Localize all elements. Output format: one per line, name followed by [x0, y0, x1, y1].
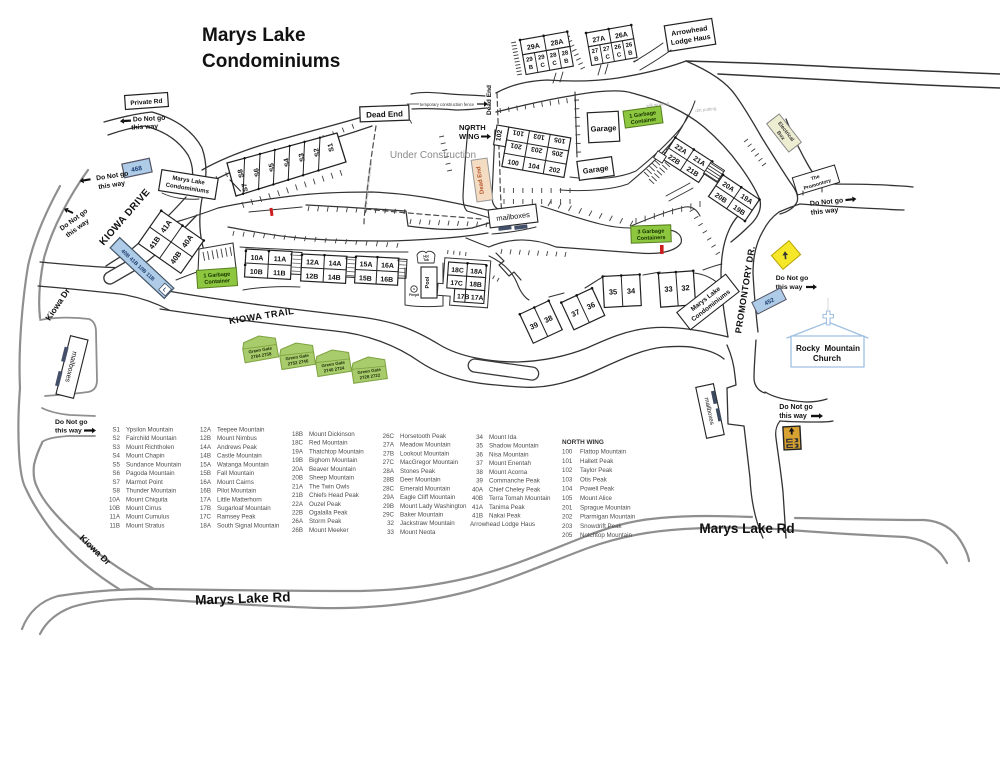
svg-text:201: 201 — [562, 504, 573, 511]
svg-text:temporary construction fence: temporary construction fence — [420, 102, 475, 107]
svg-text:10A: 10A — [250, 255, 263, 263]
svg-text:Commanche Peak: Commanche Peak — [489, 478, 541, 485]
svg-text:Sprague Mountain: Sprague Mountain — [580, 504, 631, 511]
svg-text:34: 34 — [476, 434, 483, 441]
svg-text:Baker Mountain: Baker Mountain — [400, 511, 444, 518]
svg-text:Horsetooth Peak: Horsetooth Peak — [400, 433, 447, 440]
svg-text:29A: 29A — [383, 494, 395, 501]
svg-text:21A: 21A — [292, 483, 304, 490]
svg-text:Teepee Mountain: Teepee Mountain — [217, 427, 265, 434]
svg-text:Castle Mountain: Castle Mountain — [217, 453, 262, 460]
svg-text:14B: 14B — [200, 453, 211, 460]
svg-text:18B: 18B — [292, 431, 303, 438]
svg-text:Sugarloaf Mountain: Sugarloaf Mountain — [217, 505, 271, 512]
svg-text:17C: 17C — [450, 280, 463, 288]
svg-text:11B: 11B — [109, 522, 120, 529]
svg-text:Mount Cumulus: Mount Cumulus — [126, 514, 169, 521]
svg-text:Mount Nimbus: Mount Nimbus — [217, 435, 257, 442]
svg-text:S6: S6 — [112, 470, 120, 477]
svg-text:Powell Peak: Powell Peak — [580, 486, 615, 493]
svg-text:S2: S2 — [112, 435, 120, 442]
svg-text:32: 32 — [681, 283, 690, 293]
svg-text:10A: 10A — [109, 496, 121, 503]
svg-text:Ypsilon Mountain: Ypsilon Mountain — [126, 427, 174, 434]
svg-text:Marys Lake Rd: Marys Lake Rd — [699, 521, 794, 536]
svg-text:11A: 11A — [109, 514, 120, 521]
svg-text:Eagle Cliff Mountain: Eagle Cliff Mountain — [400, 494, 456, 501]
svg-text:36: 36 — [476, 451, 483, 458]
svg-text:10B: 10B — [109, 505, 120, 512]
svg-text:Chiefs Head Peak: Chiefs Head Peak — [309, 492, 360, 499]
svg-text:26B: 26B — [292, 527, 303, 534]
svg-text:35: 35 — [476, 443, 483, 450]
svg-text:16B: 16B — [380, 276, 393, 284]
svg-text:Storm Peak: Storm Peak — [309, 518, 342, 525]
svg-text:15A: 15A — [200, 461, 212, 468]
svg-text:Watanga Mountain: Watanga Mountain — [217, 461, 269, 468]
svg-text:Containers: Containers — [637, 235, 666, 242]
svg-text:Mount Dickinson: Mount Dickinson — [309, 431, 355, 438]
svg-text:18B: 18B — [469, 281, 482, 289]
svg-text:27C: 27C — [383, 459, 395, 466]
svg-text:Ogalalla Peak: Ogalalla Peak — [309, 509, 348, 516]
svg-text:21B: 21B — [292, 492, 303, 499]
svg-text:22B: 22B — [292, 509, 303, 516]
svg-text:Sheep Mountain: Sheep Mountain — [309, 475, 355, 482]
svg-text:this way: this way — [55, 428, 82, 435]
svg-text:Pool: Pool — [425, 276, 431, 288]
svg-text:Andrews Peak: Andrews Peak — [217, 444, 258, 451]
svg-text:S3: S3 — [112, 444, 120, 451]
svg-text:Dead End: Dead End — [366, 109, 403, 119]
svg-text:Dead End: Dead End — [486, 85, 493, 115]
svg-text:Mount Lady Washington: Mount Lady Washington — [400, 503, 467, 510]
svg-text:27B: 27B — [383, 450, 394, 457]
svg-text:18A: 18A — [470, 268, 483, 276]
svg-text:203: 203 — [562, 523, 573, 530]
svg-text:16A: 16A — [381, 262, 394, 270]
svg-text:Ouzel Peak: Ouzel Peak — [309, 501, 342, 508]
svg-text:202: 202 — [562, 514, 573, 521]
svg-text:17B: 17B — [457, 293, 470, 301]
svg-text:14A: 14A — [200, 444, 212, 451]
svg-text:26C: 26C — [383, 433, 395, 440]
svg-text:Mount Alice: Mount Alice — [580, 495, 613, 502]
svg-text:17B: 17B — [200, 505, 211, 512]
svg-text:Fairchild Mountain: Fairchild Mountain — [126, 435, 177, 442]
svg-text:Mount Ida: Mount Ida — [489, 434, 517, 441]
svg-text:10B: 10B — [250, 269, 263, 277]
svg-text:S8: S8 — [112, 488, 120, 495]
svg-text:Red Mountain: Red Mountain — [309, 440, 348, 447]
svg-text:S1: S1 — [112, 427, 120, 434]
svg-text:26A: 26A — [292, 518, 304, 525]
svg-text:Sundance Mountain: Sundance Mountain — [126, 461, 182, 468]
svg-text:11B: 11B — [273, 270, 286, 278]
svg-text:NORTH WING: NORTH WING — [562, 439, 604, 446]
svg-text:Otis Peak: Otis Peak — [580, 476, 608, 483]
svg-text:this way: this way — [131, 123, 158, 131]
svg-text:18C: 18C — [292, 440, 304, 447]
svg-text:14A: 14A — [328, 260, 341, 268]
svg-text:Marmot Point: Marmot Point — [126, 479, 163, 486]
svg-text:22A: 22A — [292, 501, 304, 508]
svg-text:15B: 15B — [200, 470, 211, 477]
svg-text:Pilot Mountain: Pilot Mountain — [217, 488, 257, 495]
svg-text:Stones Peak: Stones Peak — [400, 468, 436, 475]
svg-text:11A: 11A — [274, 256, 287, 264]
svg-text:28A: 28A — [383, 468, 395, 475]
svg-text:Under Construction: Under Construction — [390, 150, 476, 161]
svg-text:14B: 14B — [328, 274, 341, 282]
svg-text:Do Not go: Do Not go — [55, 419, 87, 426]
svg-text:Arrowhead Lodge Haus: Arrowhead Lodge Haus — [470, 521, 535, 528]
svg-text:Mount Richtholen: Mount Richtholen — [126, 444, 175, 451]
svg-text:Thatchtop Mountain: Thatchtop Mountain — [309, 448, 364, 455]
svg-text:205: 205 — [562, 532, 573, 539]
svg-text:Tub: Tub — [423, 258, 429, 262]
svg-text:S4: S4 — [112, 453, 120, 460]
svg-text:12A: 12A — [306, 259, 319, 267]
svg-text:16A: 16A — [200, 479, 212, 486]
svg-text:34: 34 — [627, 286, 637, 295]
svg-text:19B: 19B — [292, 457, 303, 464]
svg-text:MacGregor Mountain: MacGregor Mountain — [400, 459, 459, 466]
svg-text:18C: 18C — [451, 267, 464, 275]
svg-text:102: 102 — [562, 467, 573, 474]
svg-text:Little Matterhorn: Little Matterhorn — [217, 496, 262, 503]
svg-text:41B: 41B — [472, 512, 483, 519]
svg-text:17A: 17A — [471, 294, 484, 302]
svg-text:28B: 28B — [383, 477, 394, 484]
svg-text:33: 33 — [664, 284, 673, 294]
svg-text:37: 37 — [476, 460, 483, 467]
svg-text:S5: S5 — [112, 461, 120, 468]
svg-text:Terra Tomah Mountain: Terra Tomah Mountain — [489, 495, 551, 502]
svg-text:Hallett Peak: Hallett Peak — [580, 458, 614, 465]
svg-text:Mount Chiquita: Mount Chiquita — [126, 496, 168, 503]
svg-text:Snowdrift Peak: Snowdrift Peak — [580, 523, 623, 530]
svg-text:Mount Acorna: Mount Acorna — [489, 469, 528, 476]
svg-text:Bighorn Mountain: Bighorn Mountain — [309, 457, 358, 464]
svg-text:40A: 40A — [472, 486, 484, 493]
svg-text:Mount Cirrus: Mount Cirrus — [126, 505, 161, 512]
svg-text:Tanima Peak: Tanima Peak — [489, 504, 526, 511]
svg-text:Ptarmigan Mountain: Ptarmigan Mountain — [580, 514, 636, 521]
svg-text:Do Not go: Do Not go — [779, 404, 812, 411]
svg-text:17C: 17C — [200, 514, 212, 521]
svg-text:Condominiums: Condominiums — [202, 51, 340, 72]
svg-text:29C: 29C — [383, 511, 395, 518]
svg-text:Church: Church — [813, 354, 841, 363]
svg-text:104: 104 — [562, 486, 573, 493]
svg-text:S7: S7 — [112, 479, 120, 486]
svg-text:Do Not go: Do Not go — [776, 275, 808, 282]
svg-text:Ramsey Peak: Ramsey Peak — [217, 514, 256, 521]
svg-text:17A: 17A — [200, 496, 212, 503]
svg-text:Notchtop Mountain: Notchtop Mountain — [580, 532, 632, 539]
svg-text:Rocky Mountain: Rocky Mountain — [796, 344, 860, 353]
svg-text:Mount Cairns: Mount Cairns — [217, 479, 254, 486]
svg-text:18A: 18A — [200, 522, 212, 529]
svg-text:41A: 41A — [472, 504, 484, 511]
svg-text:this way: this way — [779, 413, 807, 420]
svg-text:The Twin Owls: The Twin Owls — [309, 483, 349, 490]
svg-text:Mount Neota: Mount Neota — [400, 529, 436, 536]
svg-text:Shadow Mountain: Shadow Mountain — [489, 443, 539, 450]
svg-text:Beaver Mountain: Beaver Mountain — [309, 466, 356, 473]
svg-text:101: 101 — [562, 458, 573, 465]
svg-text:29B: 29B — [383, 503, 394, 510]
svg-text:35: 35 — [609, 287, 618, 296]
svg-text:19A: 19A — [292, 448, 304, 455]
svg-text:Nakai Peak: Nakai Peak — [489, 512, 522, 519]
svg-text:32: 32 — [387, 520, 394, 527]
svg-text:South Signal Mountain: South Signal Mountain — [217, 522, 280, 529]
svg-text:Garage: Garage — [590, 123, 616, 133]
svg-text:12B: 12B — [200, 435, 211, 442]
svg-text:20A: 20A — [292, 466, 304, 473]
svg-text:Pagoda Mountain: Pagoda Mountain — [126, 470, 175, 477]
svg-text:Mount Enentah: Mount Enentah — [489, 460, 532, 467]
svg-text:WING: WING — [459, 132, 480, 141]
svg-text:100: 100 — [562, 449, 573, 456]
svg-text:Firepit: Firepit — [409, 293, 420, 297]
svg-text:27A: 27A — [383, 442, 395, 449]
svg-text:Nisa Mountain: Nisa Mountain — [489, 451, 529, 458]
svg-text:Lookout Mountain: Lookout Mountain — [400, 450, 450, 457]
svg-text:Thunder Mountain: Thunder Mountain — [126, 488, 177, 495]
svg-text:12A: 12A — [200, 427, 212, 434]
svg-text:Deer Mountain: Deer Mountain — [400, 477, 441, 484]
svg-text:39: 39 — [476, 478, 483, 485]
svg-text:40B: 40B — [472, 495, 483, 502]
svg-text:20B: 20B — [292, 475, 303, 482]
svg-text:Taylor Peak: Taylor Peak — [580, 467, 613, 474]
svg-text:Fall Mountain: Fall Mountain — [217, 470, 255, 477]
svg-text:Emerald Mountain: Emerald Mountain — [400, 485, 451, 492]
svg-text:Mount Stratus: Mount Stratus — [126, 522, 165, 529]
svg-text:Chief Cheley Peak: Chief Cheley Peak — [489, 486, 541, 493]
svg-text:Marys Lake: Marys Lake — [202, 25, 306, 46]
svg-text:NORTH: NORTH — [459, 123, 486, 132]
svg-text:12B: 12B — [305, 273, 318, 281]
svg-text:28C: 28C — [383, 485, 395, 492]
svg-text:15A: 15A — [359, 261, 372, 269]
svg-text:Mount Chapin: Mount Chapin — [126, 453, 165, 460]
svg-text:33: 33 — [387, 529, 394, 536]
svg-text:Flattop Mountain: Flattop Mountain — [580, 449, 627, 456]
svg-text:16B: 16B — [200, 488, 211, 495]
svg-text:Jackstraw Mountain: Jackstraw Mountain — [400, 520, 455, 527]
svg-text:Meadow Mountain: Meadow Mountain — [400, 442, 451, 449]
svg-text:38: 38 — [476, 469, 483, 476]
svg-text:15B: 15B — [359, 275, 372, 283]
svg-text:Mount Meeker: Mount Meeker — [309, 527, 349, 534]
svg-text:105: 105 — [562, 495, 573, 502]
svg-text:103: 103 — [562, 476, 573, 483]
